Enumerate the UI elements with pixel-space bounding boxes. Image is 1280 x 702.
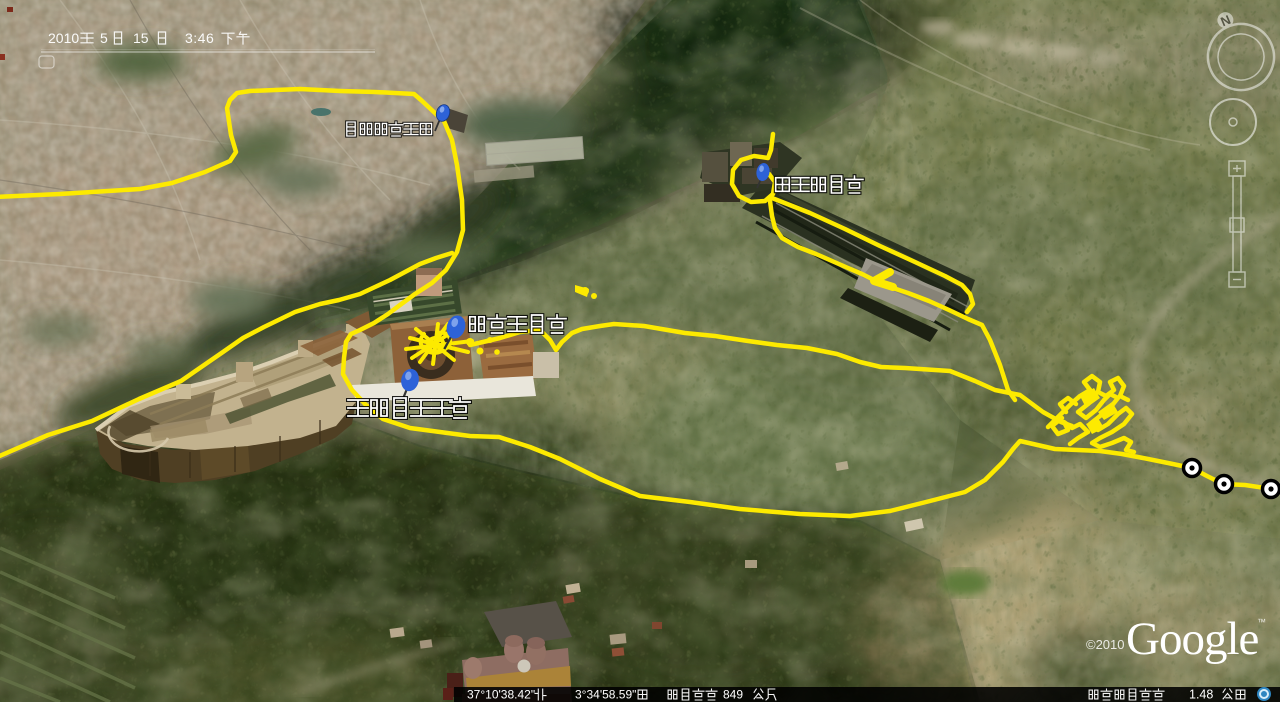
svg-text:15: 15 [133, 30, 149, 46]
svg-text:Google: Google [1126, 613, 1259, 665]
svg-text:3:46: 3:46 [185, 30, 214, 46]
svg-text:3°34'58.59": 3°34'58.59" [575, 688, 636, 702]
svg-text:37°10'38.42": 37°10'38.42" [467, 688, 535, 702]
svg-text:™: ™ [1257, 617, 1266, 627]
svg-text:2010: 2010 [48, 30, 79, 46]
svg-text:849: 849 [723, 688, 743, 702]
svg-text:©2010: ©2010 [1086, 637, 1125, 652]
svg-text:5: 5 [100, 30, 108, 46]
svg-text:1.48: 1.48 [1189, 688, 1213, 702]
